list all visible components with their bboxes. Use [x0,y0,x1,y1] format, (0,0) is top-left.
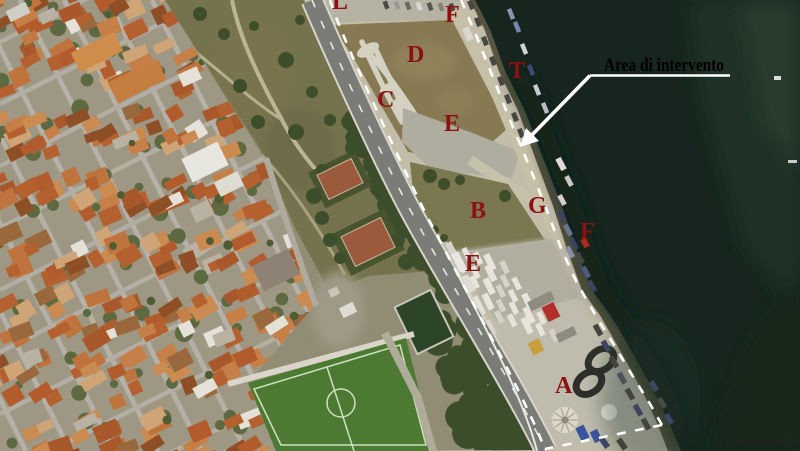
svg-text:Area di intervento: Area di intervento [604,56,724,76]
svg-text:E: E [444,111,460,137]
svg-text:A: A [555,373,573,399]
svg-text:G: G [528,193,547,219]
svg-text:F: F [580,219,595,245]
svg-text:L: L [332,0,348,15]
svg-text:T: T [509,58,525,84]
svg-text:C: C [377,87,394,113]
svg-text:B: B [470,198,486,224]
svg-text:E: E [465,251,481,277]
svg-text:D: D [407,42,424,68]
svg-text:F: F [445,2,460,28]
